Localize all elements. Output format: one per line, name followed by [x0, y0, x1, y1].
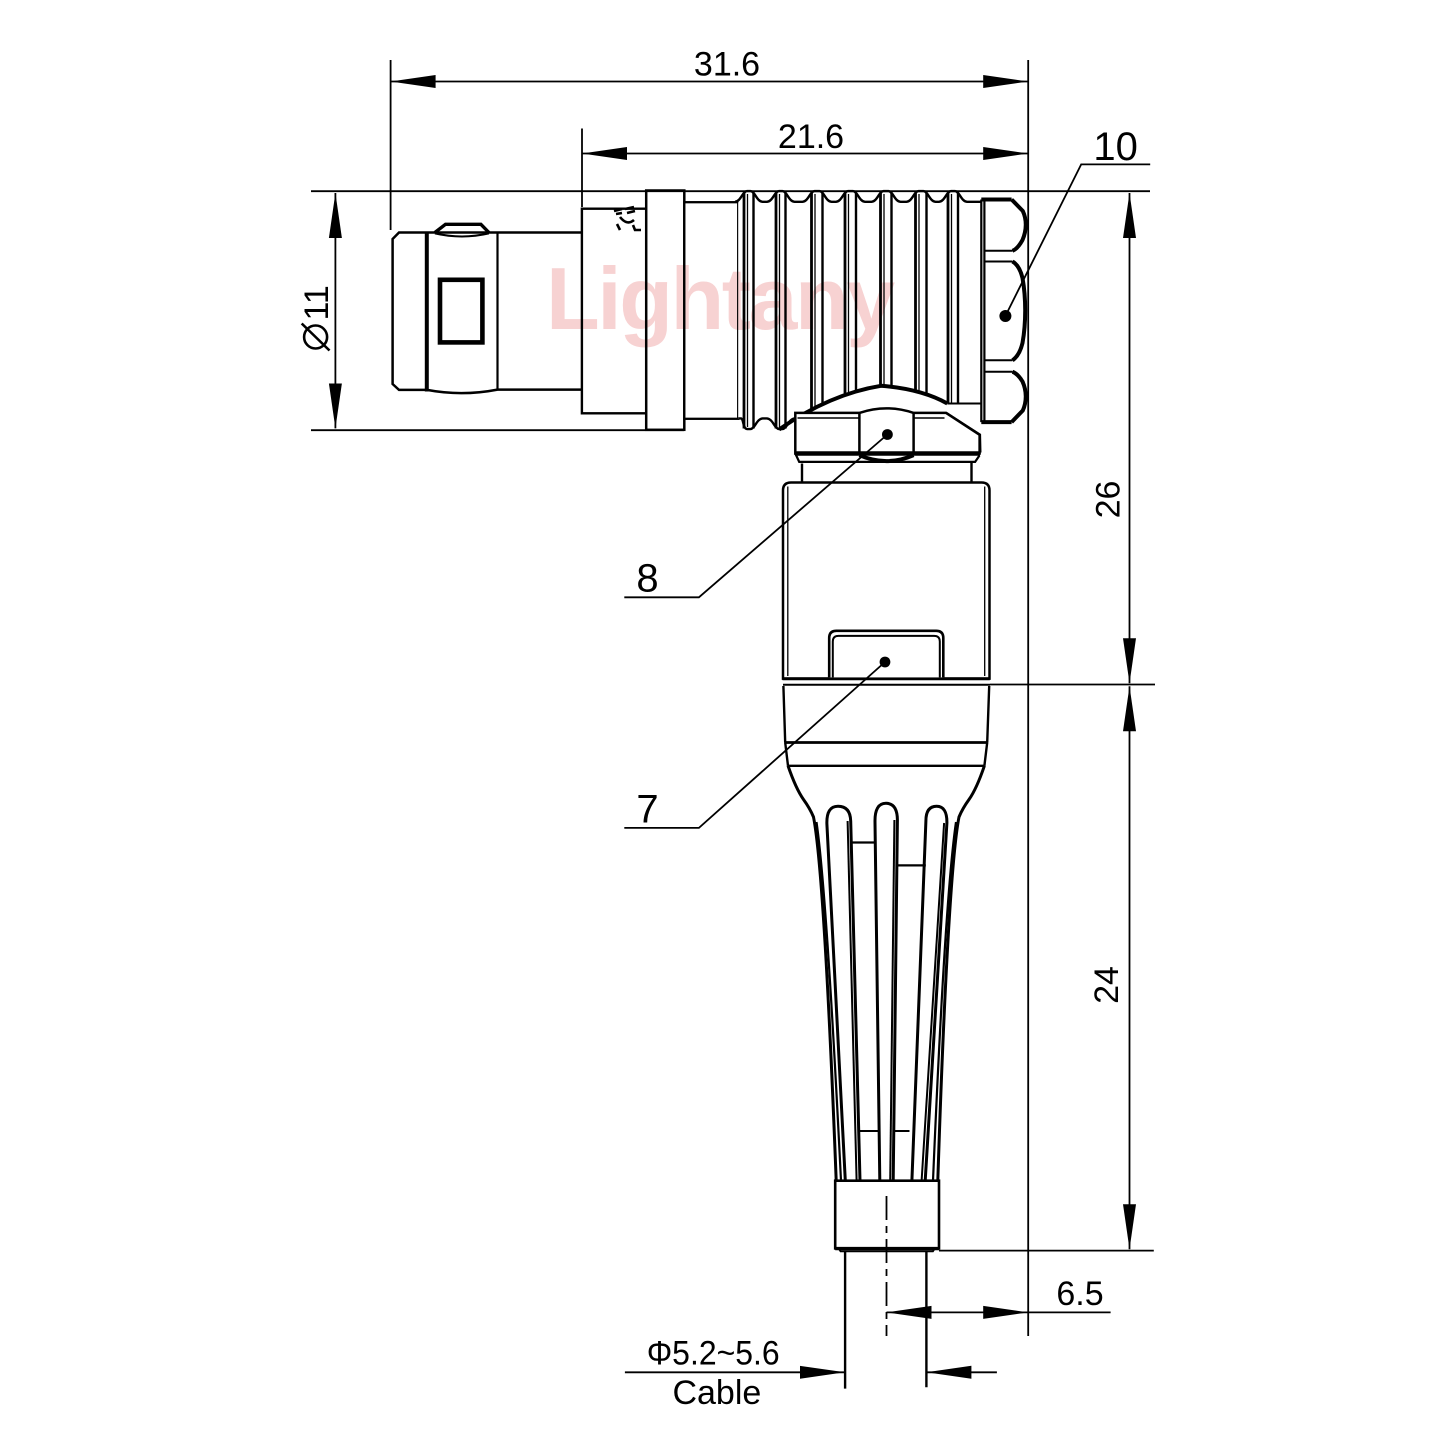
svg-text:Lightany: Lightany	[546, 249, 895, 348]
svg-text:24: 24	[1088, 966, 1126, 1004]
svg-text:31.6: 31.6	[694, 45, 760, 83]
svg-text:11: 11	[298, 285, 336, 320]
svg-text:21.6: 21.6	[778, 118, 844, 156]
svg-text:6.5: 6.5	[1056, 1275, 1103, 1313]
svg-text:26: 26	[1089, 481, 1127, 519]
svg-text:10: 10	[1093, 125, 1138, 169]
svg-text:Cable: Cable	[672, 1374, 761, 1412]
svg-text:Φ5.2~5.6: Φ5.2~5.6	[647, 1334, 780, 1372]
svg-text:8: 8	[636, 557, 658, 601]
svg-text:7: 7	[636, 788, 658, 832]
